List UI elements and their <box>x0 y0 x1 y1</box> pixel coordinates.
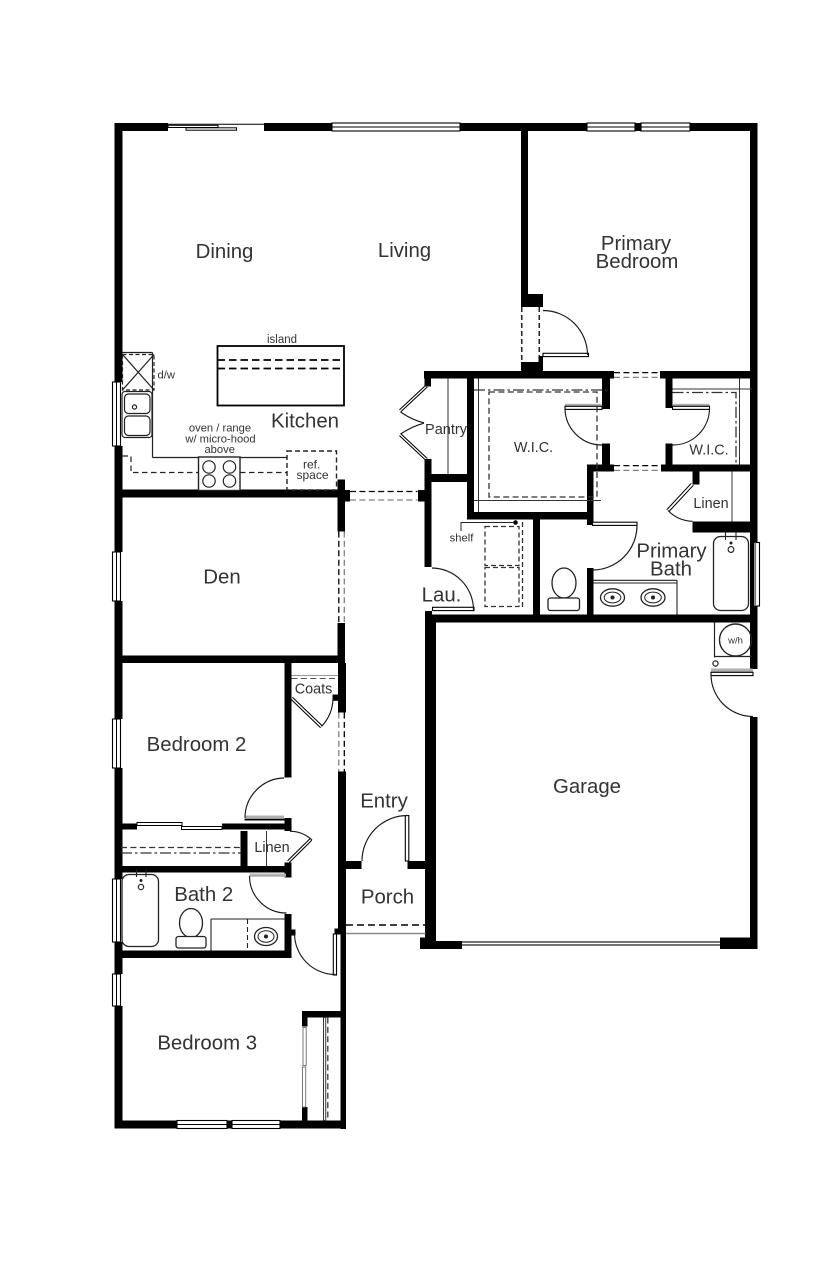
svg-text:Bedroom 3: Bedroom 3 <box>157 1033 257 1055</box>
svg-text:Garage: Garage <box>553 776 621 798</box>
svg-text:above: above <box>204 444 234 456</box>
svg-text:Linen: Linen <box>254 840 289 856</box>
svg-text:Bedroom: Bedroom <box>596 251 679 273</box>
svg-text:W.I.C.: W.I.C. <box>514 440 553 456</box>
svg-text:Bedroom 2: Bedroom 2 <box>147 734 247 756</box>
svg-text:d/w: d/w <box>158 370 176 382</box>
svg-text:W.I.C.: W.I.C. <box>689 443 728 459</box>
svg-text:Porch: Porch <box>361 887 414 909</box>
svg-text:Linen: Linen <box>693 496 728 512</box>
svg-text:Kitchen: Kitchen <box>271 411 339 433</box>
svg-text:Lau.: Lau. <box>422 585 462 607</box>
svg-text:Living: Living <box>378 240 431 262</box>
svg-text:Pantry: Pantry <box>425 422 468 438</box>
svg-text:Bath 2: Bath 2 <box>174 884 233 906</box>
svg-text:Den: Den <box>203 567 240 589</box>
svg-text:island: island <box>267 334 297 346</box>
svg-text:Entry: Entry <box>360 791 408 813</box>
svg-text:space: space <box>296 468 328 482</box>
svg-text:w/h: w/h <box>727 636 743 647</box>
svg-text:Bath: Bath <box>650 559 692 581</box>
svg-text:shelf: shelf <box>450 533 475 545</box>
svg-text:Dining: Dining <box>196 241 254 263</box>
svg-text:Coats: Coats <box>295 682 333 698</box>
